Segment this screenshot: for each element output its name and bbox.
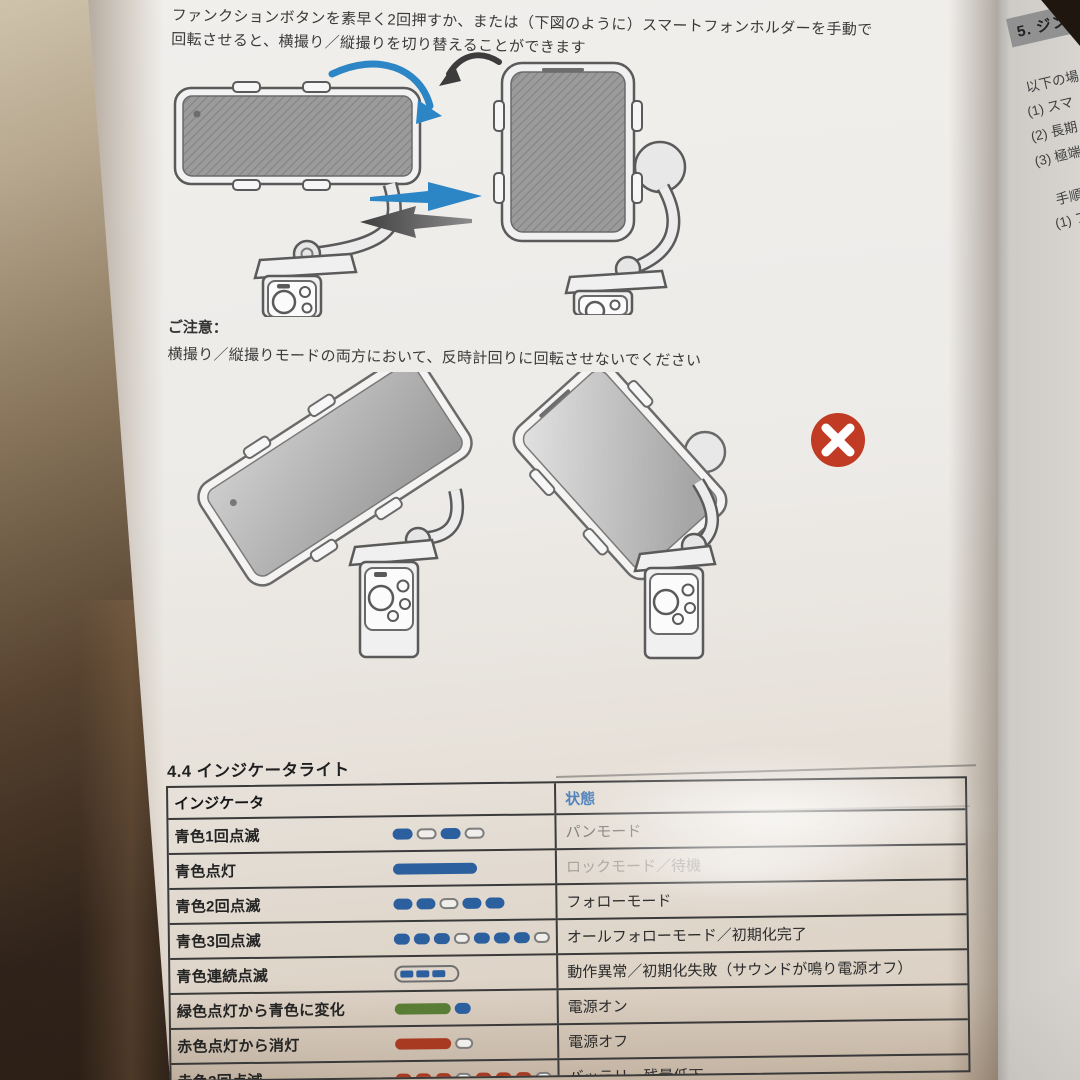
right-page-text: (3) 極端 — [1032, 140, 1080, 170]
rotate-clockwise-arrow-icon — [320, 56, 445, 134]
indicator-light-pattern — [394, 964, 459, 982]
indicator-light-pattern — [393, 827, 485, 839]
status-text: オールフォローモード／初期化完了 — [567, 923, 807, 947]
right-page-text: 手順 — [1053, 183, 1080, 209]
phone-portrait — [494, 63, 642, 241]
prohibited-icon — [809, 411, 867, 469]
status-text: 電源オン — [568, 995, 628, 1017]
phone-landscape-tilted — [188, 372, 482, 598]
gimbal-handle — [360, 562, 418, 657]
status-text: 電源オフ — [568, 1030, 628, 1052]
status-text: パンモード — [565, 820, 641, 842]
indicator-label: 青色2回点滅 — [175, 895, 260, 917]
indicator-light-pattern — [393, 897, 504, 909]
prohibited-landscape-diagram — [160, 372, 490, 672]
gimbal-handle — [574, 291, 632, 315]
handle-bracket — [255, 254, 356, 278]
indicator-light-pattern — [395, 1002, 471, 1014]
header-indicator: インジケータ — [168, 783, 556, 818]
gimbal-handle — [645, 568, 703, 658]
right-page-text: 以下の場 — [1023, 65, 1080, 97]
indicator-label: 青色点灯 — [175, 860, 236, 882]
status-text: ロックモード／待機 — [566, 854, 701, 877]
indicator-label: 赤色点灯から消灯 — [177, 1034, 300, 1056]
prohibited-portrait-diagram — [460, 372, 800, 672]
indicator-table-body: 青色1回点滅パンモード青色点灯ロックモード／待機青色2回点滅フォローモード青色3… — [168, 810, 968, 1080]
indicator-label: 青色3回点滅 — [176, 930, 261, 952]
indicator-table: インジケータ 状態 青色1回点滅パンモード青色点灯ロックモード／待機青色2回点滅… — [166, 776, 971, 1080]
indicator-label: 緑色点灯から青色に変化 — [177, 999, 346, 1022]
photo-of-manual: ファンクションボタンを素早く2回押すか、または（下図のように）スマートフォンホル… — [0, 0, 1080, 1080]
manual-left-page: ファンクションボタンを素早く2回押すか、または（下図のように）スマートフォンホル… — [0, 0, 1080, 1080]
caution-title: ご注意： — [168, 316, 888, 346]
right-page-content: 5. ジン 以下の場 (1) スマ (2) 長期 (3) 極端 手順 (1) フ… — [999, 0, 1080, 1057]
indicator-label: 赤色3回点滅 — [177, 1070, 262, 1080]
switch-left-arrow-icon — [352, 204, 472, 240]
caution-body: 横撮り／縦撮りモードの両方において、反時計回りに回転させないでください — [167, 343, 887, 373]
caution-note: ご注意： 横撮り／縦撮りモードの両方において、反時計回りに回転させないでください — [167, 316, 888, 373]
indicator-label: 青色1回点滅 — [174, 825, 259, 847]
gimbal-portrait-diagram — [470, 55, 690, 315]
header-status: 状態 — [556, 778, 965, 813]
section-title: 4.4 インジケータライト — [167, 756, 350, 782]
right-page-text: (1) フ — [1053, 205, 1080, 232]
indicator-label: 青色連続点滅 — [176, 965, 268, 987]
indicator-light-pattern — [393, 862, 477, 874]
indicator-light-pattern — [395, 1037, 473, 1049]
gimbal-handle — [263, 276, 321, 317]
paragraph-line-2: 回転させると、横撮り／縦撮りを切り替えることができます — [171, 31, 586, 57]
status-text: 動作異常／初期化失敗（サウンドが鳴り電源オフ） — [567, 957, 912, 982]
indicator-light-pattern — [394, 931, 550, 944]
manual-right-page: 5. ジン 以下の場 (1) スマ (2) 長期 (3) 極端 手順 (1) フ… — [998, 0, 1080, 1080]
status-text: フォローモード — [566, 890, 671, 912]
